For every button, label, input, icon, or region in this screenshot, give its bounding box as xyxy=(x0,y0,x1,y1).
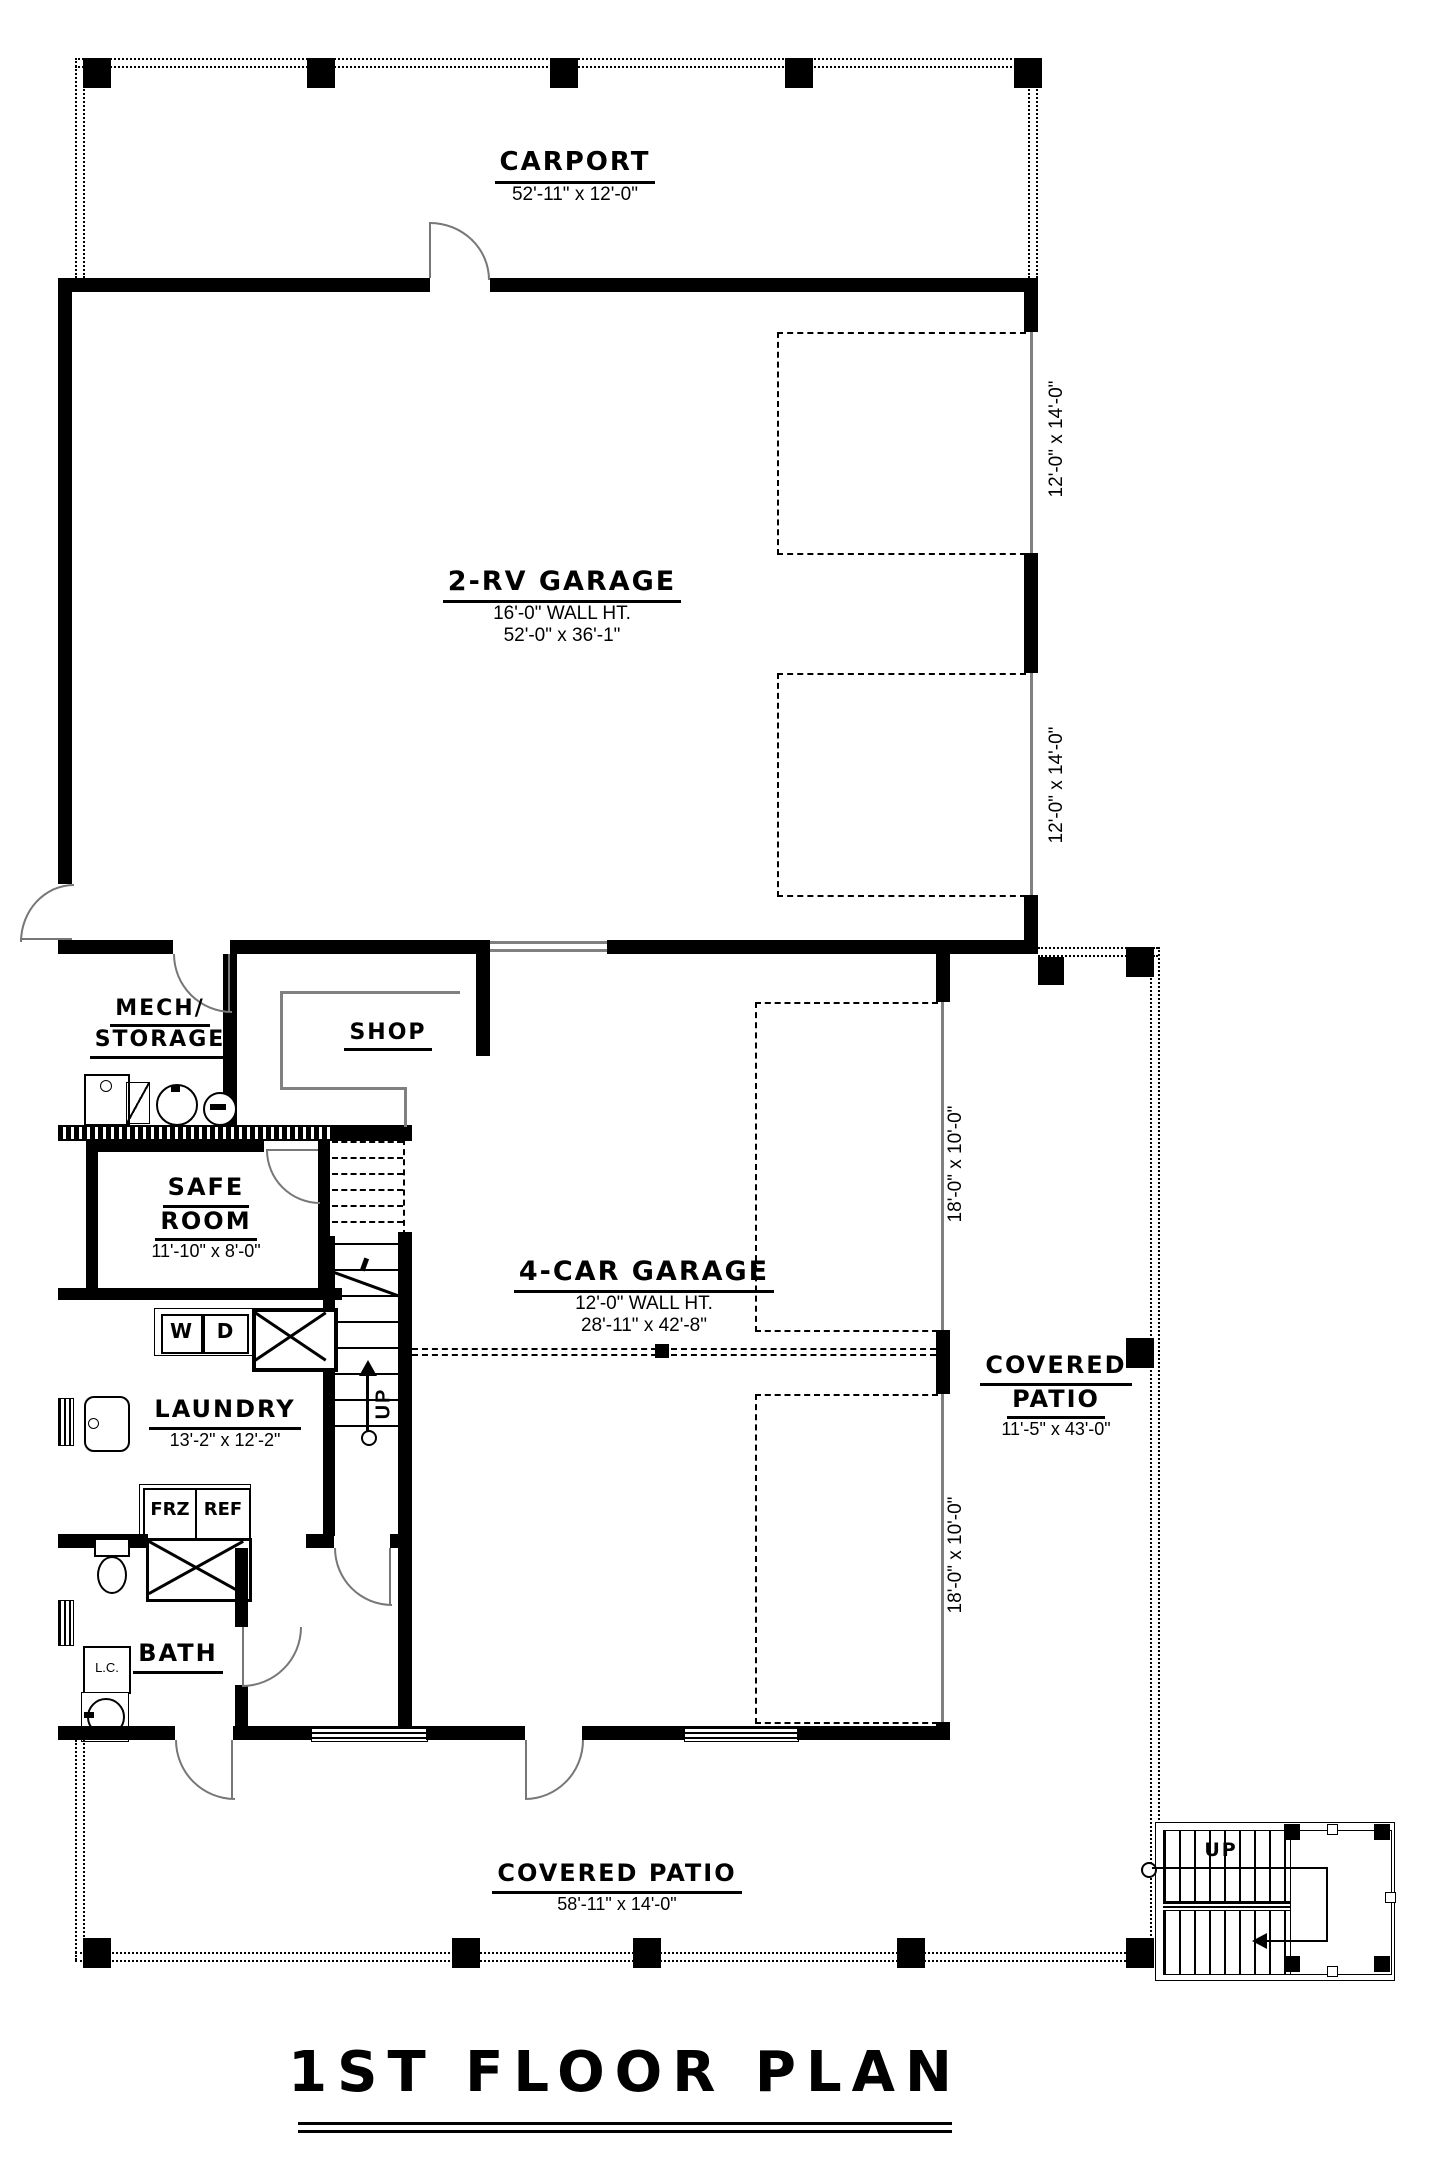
wall xyxy=(306,1534,334,1548)
post xyxy=(452,1938,480,1968)
wall xyxy=(233,1726,311,1740)
overhead-door-outline xyxy=(777,332,1026,555)
faucet xyxy=(84,1712,94,1718)
wall xyxy=(230,940,490,954)
patio-roof-outline xyxy=(1158,947,1160,1960)
post xyxy=(897,1938,925,1968)
post xyxy=(1126,1938,1154,1968)
room-name: SAFE xyxy=(163,1174,250,1208)
wall xyxy=(58,940,173,954)
shop-counter xyxy=(280,991,283,1090)
stair-tread-dashed xyxy=(332,1141,403,1143)
stair-edge-dashed xyxy=(403,1139,405,1236)
wall xyxy=(58,278,72,884)
carport-roof-outline xyxy=(83,58,85,278)
wall xyxy=(398,1232,412,1740)
wall xyxy=(936,1330,950,1394)
carport-roof-outline xyxy=(1036,58,1038,278)
stair-direction-line xyxy=(1266,1940,1328,1942)
page-title: 1ST FLOOR PLAN xyxy=(0,2040,1250,2105)
room-name: LAUNDRY xyxy=(149,1396,300,1430)
stair-direction-arrow xyxy=(1252,1933,1267,1949)
title-underline xyxy=(298,2130,952,2133)
freezer: FRZ xyxy=(143,1488,197,1540)
stair-edge-dashed xyxy=(330,1448,332,1524)
overhead-door-outline xyxy=(777,673,1026,897)
stair-tread-dashed xyxy=(332,1189,403,1191)
drainboard xyxy=(126,1082,150,1124)
stair-direction-line xyxy=(366,1376,369,1432)
post xyxy=(1014,58,1042,88)
stair-direction-line xyxy=(1326,1867,1328,1942)
wall xyxy=(582,1726,684,1740)
shop-counter xyxy=(404,1087,407,1127)
carport-roof-outline xyxy=(1028,58,1030,278)
patio-roof-outline xyxy=(83,1740,85,1960)
stair-divider xyxy=(1163,1906,1290,1908)
post xyxy=(1284,1824,1300,1840)
overhead-door-dims: 18'-0" x 10'-0" xyxy=(945,1084,967,1244)
post xyxy=(1126,947,1154,977)
wall xyxy=(1024,278,1038,332)
room-name: BATH xyxy=(133,1640,222,1674)
stair-tread-dashed xyxy=(332,1221,403,1223)
post xyxy=(633,1938,661,1968)
freezer-label: FRZ xyxy=(145,1500,195,1521)
room-name: PATIO xyxy=(1007,1386,1105,1420)
room-name: 2-RV GARAGE xyxy=(443,566,681,603)
post xyxy=(83,1938,111,1968)
post xyxy=(550,58,578,88)
faucet xyxy=(88,1418,99,1429)
laundry-label: LAUNDRY 13'-2" x 12'-2" xyxy=(120,1396,330,1450)
drain-slot xyxy=(210,1104,226,1110)
patio-right-label: COVERED PATIO 11'-5" x 43'-0" xyxy=(966,1352,1146,1440)
door-swing xyxy=(20,884,74,942)
post xyxy=(307,58,335,88)
washer: W xyxy=(161,1314,203,1354)
overhead-door-outline xyxy=(755,1394,938,1724)
room-name: 4-CAR GARAGE xyxy=(514,1256,774,1293)
exterior-stair-up-label: UP xyxy=(1196,1840,1246,1862)
wall xyxy=(86,1140,98,1300)
carport-label: CARPORT 52'-11" x 12'-0" xyxy=(445,148,705,206)
toilet-bowl xyxy=(97,1556,127,1594)
stair-direction-start xyxy=(1141,1862,1157,1878)
title-underline xyxy=(298,2122,952,2125)
wall-height: 12'-0" WALL HT. xyxy=(575,1293,713,1314)
post xyxy=(83,58,111,88)
garage-door-opening xyxy=(1030,332,1033,553)
room-name: MECH/ xyxy=(110,996,210,1027)
newel xyxy=(1327,1824,1338,1835)
stair-tread-dashed xyxy=(332,1157,403,1159)
window xyxy=(311,1726,428,1742)
wall xyxy=(607,940,1038,954)
room-name: CARPORT xyxy=(495,148,656,184)
patio-bottom-label: COVERED PATIO 58'-11" x 14'-0" xyxy=(480,1860,754,1914)
newel xyxy=(1327,1966,1338,1977)
wall xyxy=(235,1548,248,1627)
wall xyxy=(1024,553,1038,673)
room-name: COVERED PATIO xyxy=(492,1860,741,1894)
post xyxy=(1284,1956,1300,1972)
wall xyxy=(330,1125,412,1141)
four-car-garage-label: 4-CAR GARAGE 12'-0" WALL HT. 28'-11" x 4… xyxy=(494,1256,794,1337)
overhead-door-dims: 18'-0" x 10'-0" xyxy=(945,1475,967,1635)
ceiling-break-dashed xyxy=(412,1354,936,1356)
opening xyxy=(490,949,607,952)
overhead-door-dims: 12'-0" x 14'-0" xyxy=(1046,359,1068,519)
door-swing xyxy=(334,1548,392,1606)
toilet-tank xyxy=(94,1538,130,1557)
stair-direction-line xyxy=(1152,1867,1328,1869)
wall xyxy=(476,954,490,1056)
wall xyxy=(58,1726,175,1740)
washer-label: W xyxy=(163,1320,201,1343)
post xyxy=(1374,1824,1390,1840)
ceiling-break-dashed xyxy=(412,1348,936,1350)
room-dims: 11'-10" x 8'-0" xyxy=(151,1241,260,1261)
garage-door-opening xyxy=(1030,673,1033,895)
room-dims: 52'-11" x 12'-0" xyxy=(512,184,638,205)
door-swing xyxy=(242,1627,302,1687)
door-swing xyxy=(430,222,490,280)
post xyxy=(785,58,813,88)
garage-door-opening xyxy=(941,1002,944,1330)
room-name: ROOM xyxy=(155,1208,256,1242)
carport-roof-outline xyxy=(75,58,77,278)
room-name: SHOP xyxy=(344,1020,431,1051)
shop-label: SHOP xyxy=(330,1020,446,1051)
opening xyxy=(490,941,607,944)
wall xyxy=(58,1288,342,1300)
post xyxy=(655,1344,669,1358)
insulated-wall xyxy=(58,1125,330,1141)
sink-drain xyxy=(100,1080,112,1092)
wall-height: 16'-0" WALL HT. xyxy=(493,603,631,624)
newel xyxy=(1385,1892,1396,1903)
stair-tread-dashed xyxy=(332,1173,403,1175)
safe-room-label: SAFE ROOM 11'-10" x 8'-0" xyxy=(116,1174,296,1262)
stair-tread-dashed xyxy=(332,1205,403,1207)
wall xyxy=(86,1140,264,1152)
door-swing xyxy=(525,1740,584,1800)
room-name: STORAGE xyxy=(90,1027,231,1058)
patio-roof-outline xyxy=(1150,947,1152,1960)
wall xyxy=(797,1726,950,1740)
garage-door-opening xyxy=(941,1394,944,1722)
water-heater-vent xyxy=(171,1086,180,1092)
wall xyxy=(323,1236,335,1536)
patio-roof-outline xyxy=(75,1740,77,1960)
wall xyxy=(490,278,1038,292)
room-dims: 11'-5" x 43'-0" xyxy=(1001,1419,1110,1439)
wall xyxy=(426,1726,525,1740)
mech-storage-label: MECH/ STORAGE xyxy=(80,996,240,1059)
post xyxy=(1374,1956,1390,1972)
window xyxy=(58,1600,74,1646)
overhead-door-dims: 12'-0" x 14'-0" xyxy=(1046,705,1068,865)
floor-plan: CARPORT 52'-11" x 12'-0" 12'-0" x 14'-0"… xyxy=(0,0,1445,2181)
wall xyxy=(390,1534,412,1548)
door-swing xyxy=(175,1740,235,1800)
refrigerator-label: REF xyxy=(197,1500,249,1521)
bath-label: BATH xyxy=(118,1640,238,1674)
wall xyxy=(58,278,430,292)
stair-up-label: UP xyxy=(373,1324,396,1484)
patio-roof-outline xyxy=(75,1960,1158,1962)
shop-counter xyxy=(280,991,460,994)
refrigerator: REF xyxy=(195,1488,251,1540)
room-dims: 13'-2" x 12'-2" xyxy=(170,1430,281,1450)
window xyxy=(58,1398,74,1446)
dryer: D xyxy=(203,1314,249,1354)
wall xyxy=(936,954,950,1002)
stair-landing xyxy=(1290,1830,1392,1975)
room-dims: 28'-11" x 42'-8" xyxy=(581,1315,707,1336)
stair-divider xyxy=(1163,1902,1290,1904)
rv-garage-label: 2-RV GARAGE 16'-0" WALL HT. 52'-0" x 36'… xyxy=(430,566,694,647)
post xyxy=(1038,957,1064,985)
room-name: COVERED xyxy=(980,1352,1131,1386)
window xyxy=(684,1726,799,1742)
dryer-label: D xyxy=(205,1320,247,1343)
shop-counter xyxy=(280,1087,407,1090)
room-dims: 52'-0" x 36'-1" xyxy=(504,625,621,646)
patio-roof-outline xyxy=(75,1952,1158,1954)
room-dims: 58'-11" x 14'-0" xyxy=(557,1894,676,1914)
exterior-stair-lower-run xyxy=(1163,1910,1292,1975)
